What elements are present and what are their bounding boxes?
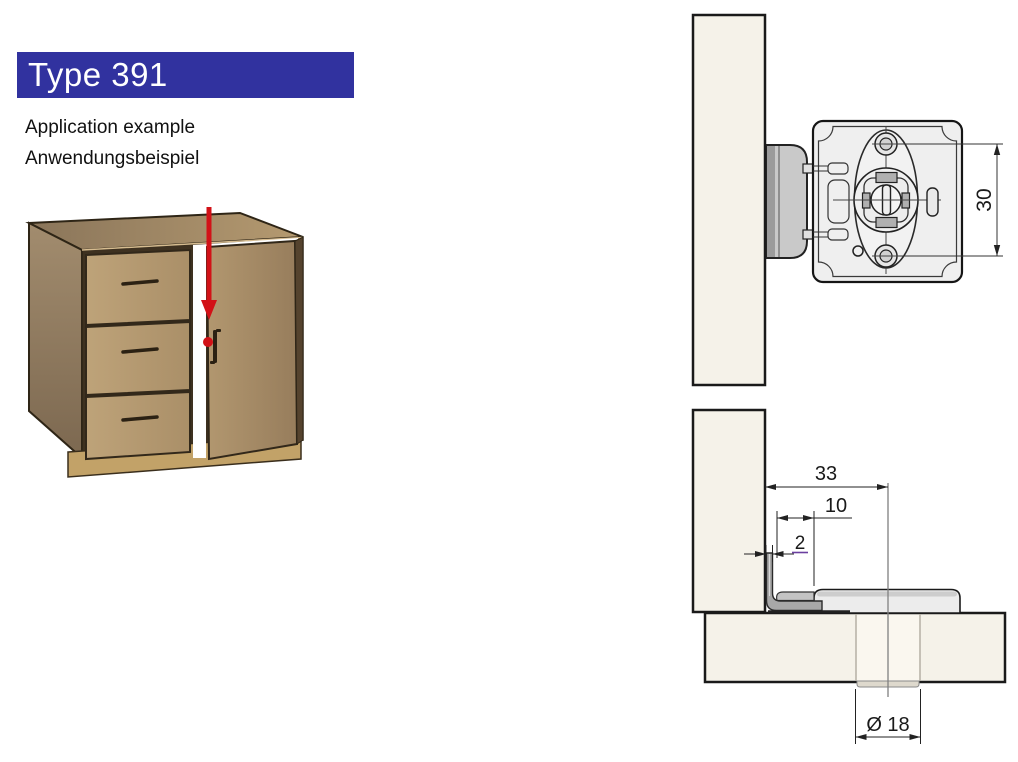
drawer-1 xyxy=(86,250,190,325)
door-panel-section xyxy=(705,613,1005,682)
small-pin-hole xyxy=(853,246,863,256)
cabinet-illustration xyxy=(20,200,350,490)
dimension-10: 10 xyxy=(777,495,852,586)
dimension-diameter-18: Ø 18 xyxy=(856,689,921,744)
side-panel-section xyxy=(693,15,765,385)
lock-section-view-drawing: 33 10 2 Ø 18 xyxy=(660,400,1018,762)
latch-arm-section xyxy=(777,592,814,601)
dim-10-label: 10 xyxy=(825,495,847,517)
red-lock-dot xyxy=(203,337,213,347)
dim-30-label: 30 xyxy=(973,188,996,211)
side-tab xyxy=(927,188,938,216)
dim-diameter-18-label: Ø 18 xyxy=(866,714,909,736)
type-header-bar: Type 391 xyxy=(17,52,354,98)
door-side-gap xyxy=(193,245,206,458)
cabinet-door xyxy=(207,241,297,459)
side-panel-section xyxy=(693,410,765,612)
dim-30-arrow-top xyxy=(994,144,1000,155)
drawer-3 xyxy=(86,392,190,459)
dim-30-arrow-bottom xyxy=(994,245,1000,256)
subtitle-block: Application example Anwendungsbeispiel xyxy=(25,112,199,174)
housing-top-shade xyxy=(817,592,957,597)
subtitle-german: Anwendungsbeispiel xyxy=(25,143,199,174)
page-title: Type 391 xyxy=(28,56,168,93)
lock-front-view-drawing: 30 xyxy=(660,0,1018,400)
strike-edge-shade xyxy=(767,146,775,257)
dimension-33: 33 xyxy=(765,463,888,490)
subtitle-english: Application example xyxy=(25,112,199,143)
dim-2-label: 2 xyxy=(795,533,806,554)
cabinet-left-side xyxy=(29,223,82,458)
dim-33-label: 33 xyxy=(815,463,837,485)
right-frame-edge xyxy=(295,237,303,444)
drawer-2 xyxy=(86,322,190,395)
